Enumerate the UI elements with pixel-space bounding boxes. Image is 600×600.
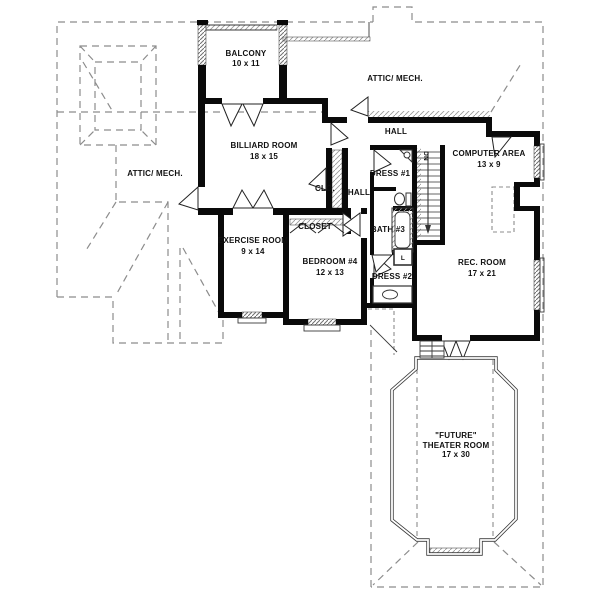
label-theater-dims: 17 x 30 [442, 450, 470, 459]
label-billiard: BILLIARD ROOM [230, 141, 297, 150]
label-hall-upper: HALL [385, 127, 407, 136]
toilet-tank-icon [406, 193, 411, 206]
label-computer-dims: 13 x 9 [477, 160, 501, 169]
exterior-walls [197, 20, 540, 341]
label-linen: L [401, 255, 405, 262]
label-rec-room: REC. ROOM [458, 258, 506, 267]
label-exercise: EXERCISE ROOM [218, 236, 288, 245]
label-hall-lower: HALL [348, 188, 370, 197]
label-bath-3: BATH #3 [371, 225, 405, 234]
label-theater-name: THEATER ROOM [423, 441, 490, 450]
label-closet: CLOSET [298, 222, 332, 231]
label-balcony: BALCONY [226, 49, 267, 58]
label-stairs-dn: DN [422, 151, 429, 161]
floor-plan: BALCONY 10 x 11 ATTIC/ MECH. ATTIC/ MECH… [0, 0, 600, 600]
corner-sink-bowl-icon [404, 152, 410, 158]
label-attic-right: ATTIC/ MECH. [367, 74, 423, 83]
label-dress-1: DRESS #1 [370, 169, 411, 178]
label-dress-2: DRESS #2 [372, 272, 413, 281]
label-computer: COMPUTER AREA [453, 149, 526, 158]
floor-plan-drawing: BALCONY 10 x 11 ATTIC/ MECH. ATTIC/ MECH… [0, 0, 600, 600]
label-billiard-dims: 18 x 15 [250, 152, 278, 161]
roof-outline-dashed [57, 7, 543, 587]
label-bedroom-4: BEDROOM #4 [303, 257, 358, 266]
label-theater-future: "FUTURE" [435, 431, 477, 440]
label-exercise-dims: 9 x 14 [241, 247, 265, 256]
theater-roof-break-dashed [361, 187, 514, 540]
label-clo: CLO. [315, 184, 335, 193]
label-bedroom-4-dims: 12 x 13 [316, 268, 344, 277]
label-rec-room-dims: 17 x 21 [468, 269, 496, 278]
vanity-sink-icon [383, 290, 398, 299]
label-balcony-dims: 10 x 11 [232, 59, 260, 68]
toilet-icon [395, 193, 405, 205]
label-attic-left: ATTIC/ MECH. [127, 169, 183, 178]
theater-entry-steps [420, 341, 444, 358]
